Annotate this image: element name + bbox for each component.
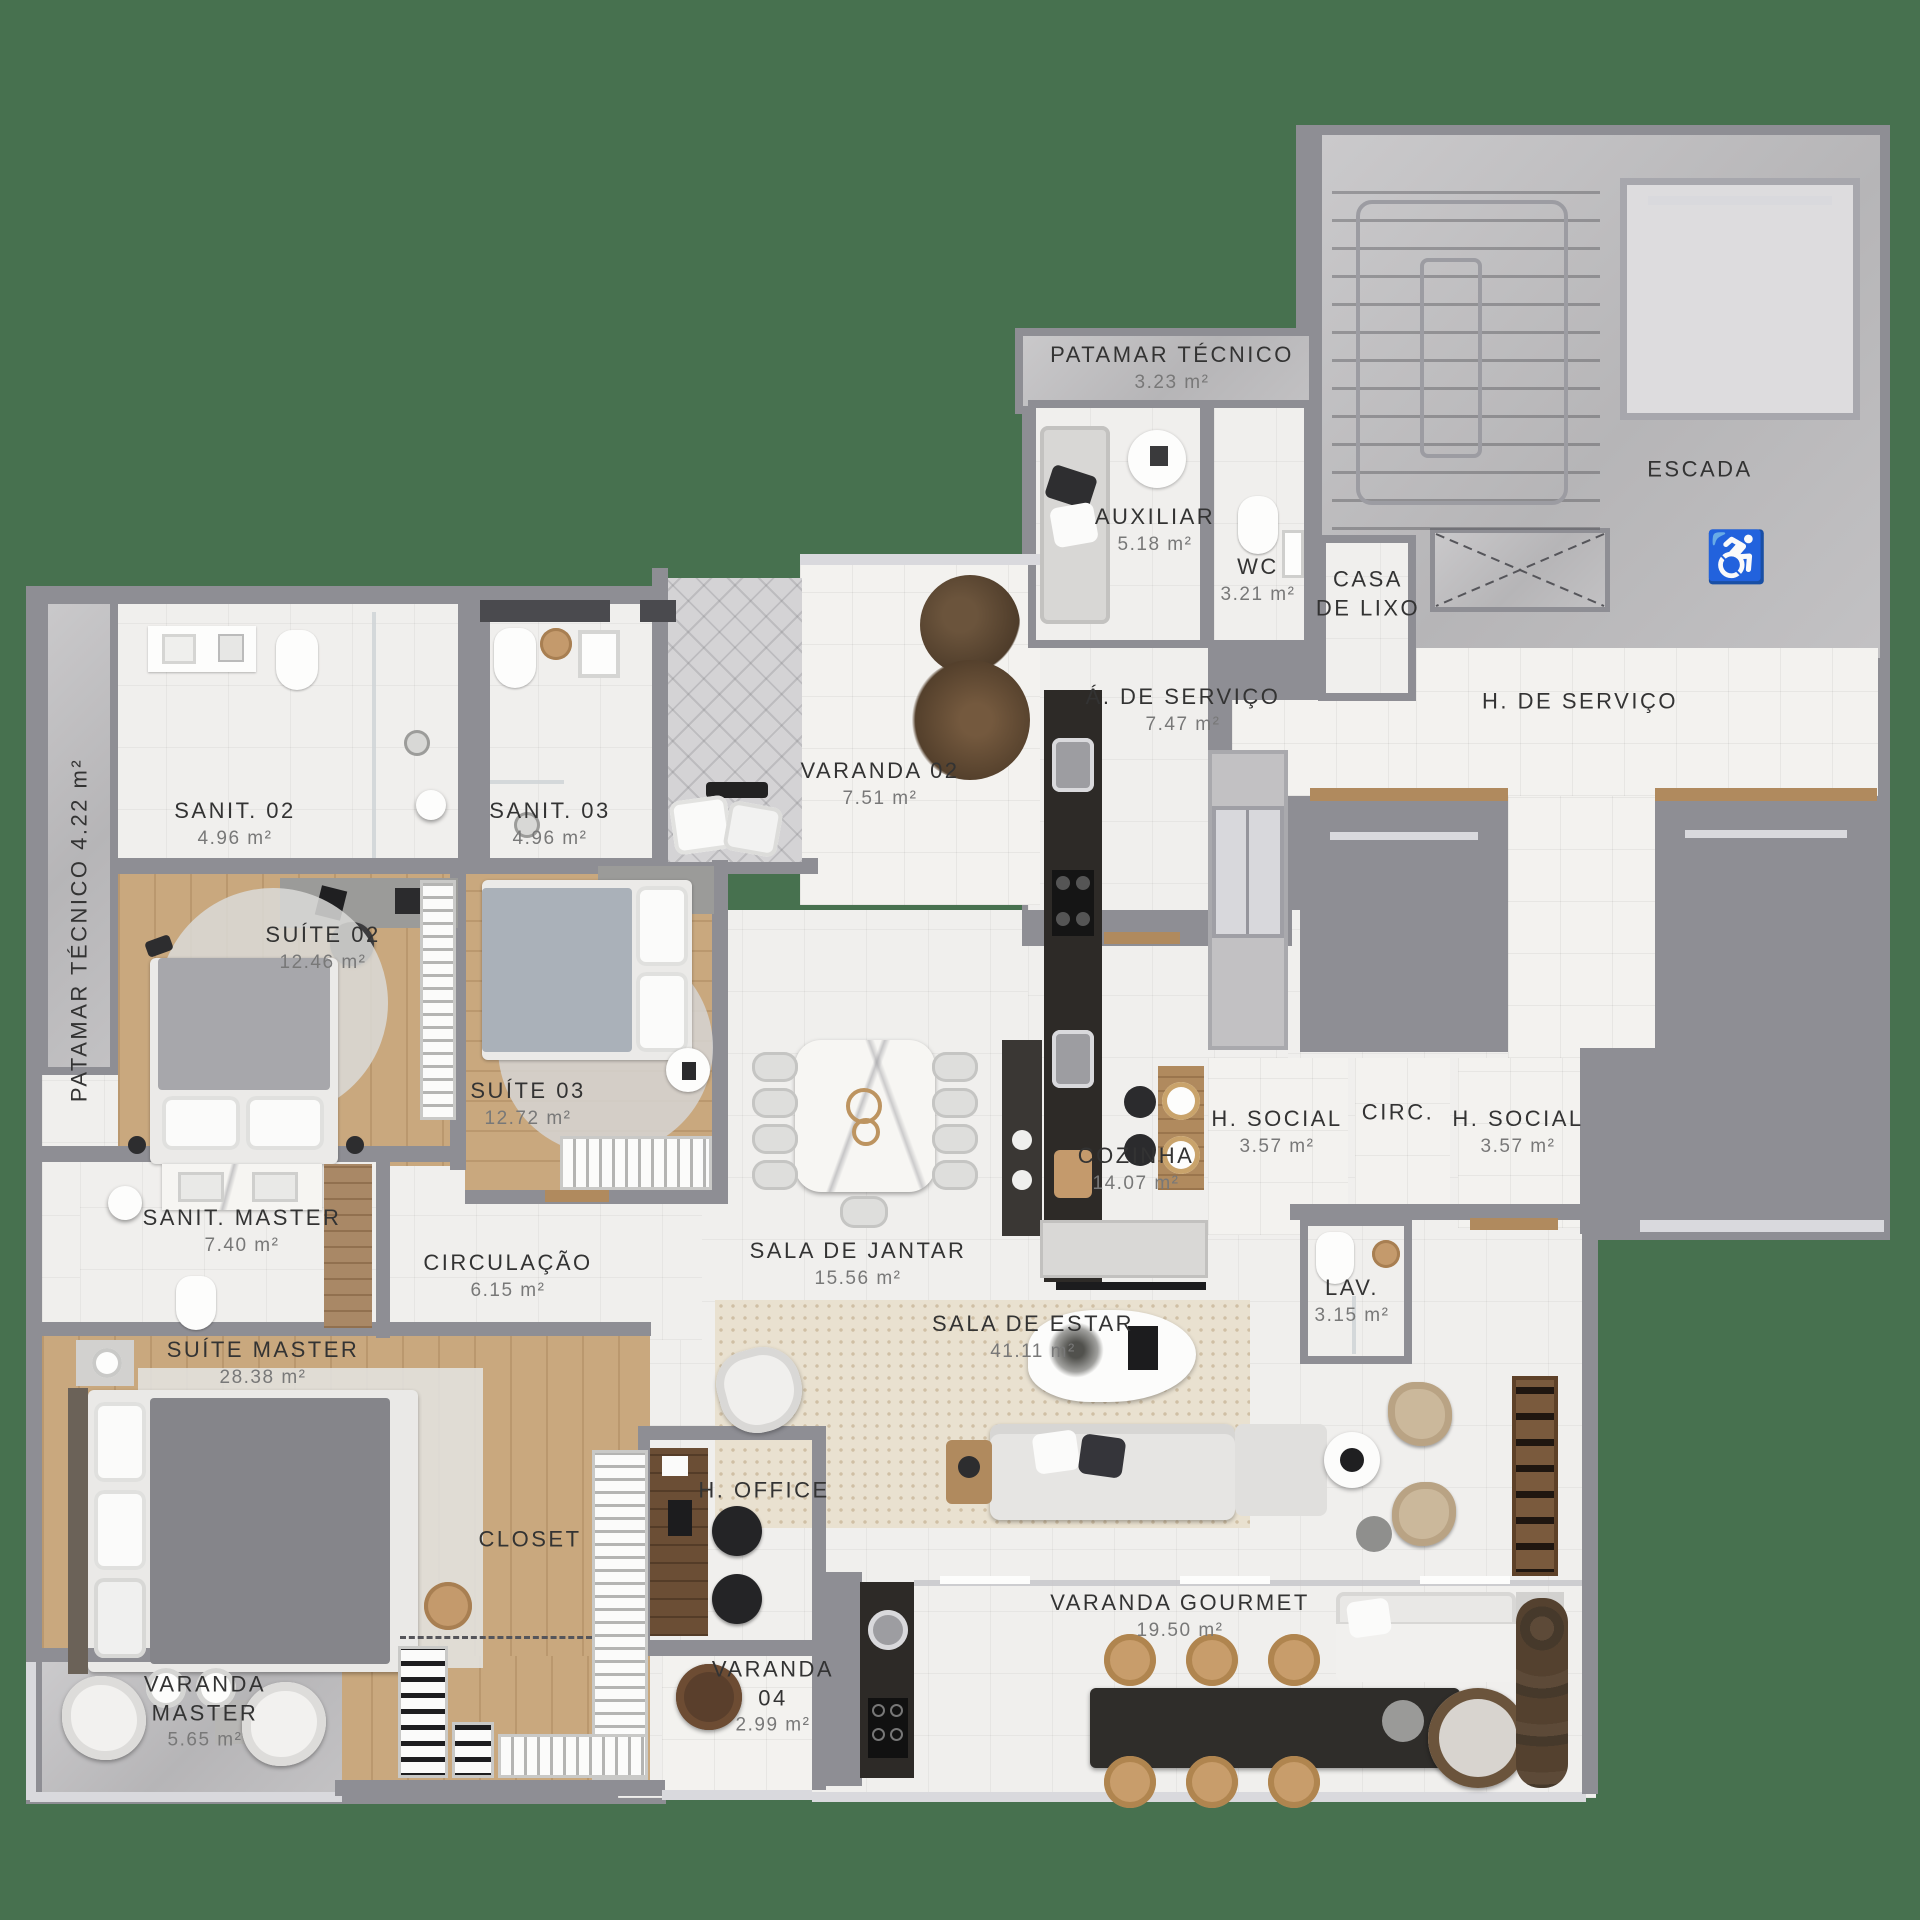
room-name: SUÍTE MASTER	[167, 1337, 360, 1362]
room-label-lav: LAV.3.15 m²	[1315, 1274, 1390, 1328]
room-label-patamar-tecnico-left: PATAMAR TÉCNICO 4.22 m²	[66, 758, 95, 1102]
room-name: SANIT. MASTER	[143, 1205, 342, 1230]
room-name: PATAMAR TÉCNICO	[1050, 342, 1294, 367]
room-area: 41.11 m²	[932, 1339, 1134, 1364]
room-label-patamar-tecnico-top: PATAMAR TÉCNICO3.23 m²	[1050, 341, 1294, 395]
room-label-sala-de-jantar: SALA DE JANTAR15.56 m²	[750, 1237, 967, 1291]
room-name: SALA DE ESTAR	[932, 1311, 1134, 1336]
room-label-auxiliar: AUXILIAR5.18 m²	[1095, 503, 1215, 557]
room-label-h-office: H. OFFICE	[698, 1477, 829, 1506]
room-label-h-social-left: H. SOCIAL3.57 m²	[1211, 1105, 1342, 1159]
room-area: 3.21 m²	[1221, 582, 1296, 607]
room-area: 12.72 m²	[470, 1106, 585, 1131]
room-area: 6.15 m²	[423, 1278, 592, 1303]
room-area: 15.56 m²	[750, 1266, 967, 1291]
room-name: Á. DE SERVIÇO	[1086, 684, 1281, 709]
room-label-suite-master: SUÍTE MASTER28.38 m²	[167, 1336, 360, 1390]
room-name: COZINHA	[1078, 1143, 1195, 1168]
room-label-varanda-master: VARANDA MASTER5.65 m²	[144, 1671, 266, 1754]
room-name: H. DE SERVIÇO	[1482, 689, 1678, 714]
room-area: 3.57 m²	[1452, 1134, 1583, 1159]
room-label-h-de-servico: H. DE SERVIÇO	[1482, 688, 1678, 717]
room-label-sala-de-estar: SALA DE ESTAR41.11 m²	[932, 1310, 1134, 1364]
room-label-varanda-02: VARANDA 027.51 m²	[800, 757, 959, 811]
room-area: 3.57 m²	[1211, 1134, 1342, 1159]
room-name: H. SOCIAL	[1211, 1106, 1342, 1131]
room-name: VARANDA 04	[712, 1657, 834, 1711]
room-area: 14.07 m²	[1078, 1171, 1195, 1196]
room-area: 3.23 m²	[1050, 370, 1294, 395]
room-name: LAV.	[1325, 1275, 1379, 1300]
room-area: 7.51 m²	[800, 786, 959, 811]
room-name: VARANDA GOURMET	[1050, 1590, 1310, 1615]
room-name: SUÍTE 03	[470, 1078, 585, 1103]
room-label-varanda-gourmet: VARANDA GOURMET19.50 m²	[1050, 1589, 1310, 1643]
room-label-sanit-03: SANIT. 034.96 m²	[489, 797, 611, 851]
room-area: 28.38 m²	[167, 1365, 360, 1390]
room-area: 7.47 m²	[1086, 712, 1281, 737]
room-name: PATAMAR TÉCNICO 4.22 m²	[67, 758, 92, 1102]
room-label-escada: ESCADA	[1647, 456, 1752, 485]
room-name: H. SOCIAL	[1452, 1106, 1583, 1131]
room-name: SANIT. 02	[174, 798, 296, 823]
room-label-varanda-04: VARANDA 042.99 m²	[712, 1656, 834, 1739]
room-name: VARANDA 02	[800, 758, 959, 783]
room-label-cozinha: COZINHA14.07 m²	[1078, 1142, 1195, 1196]
room-label-a-de-servico: Á. DE SERVIÇO7.47 m²	[1086, 683, 1281, 737]
room-name: H. OFFICE	[698, 1478, 829, 1503]
room-area: 3.15 m²	[1315, 1303, 1390, 1328]
room-label-casa-de-lixo: CASA DE LIXO	[1316, 565, 1420, 622]
room-area: 5.18 m²	[1095, 532, 1215, 557]
room-name: CLOSET	[478, 1527, 581, 1552]
room-area: 4.96 m²	[174, 826, 296, 851]
room-name: SALA DE JANTAR	[750, 1238, 967, 1263]
room-label-sanit-master: SANIT. MASTER7.40 m²	[143, 1204, 342, 1258]
room-name: CASA DE LIXO	[1316, 566, 1420, 620]
floor-plan: ♿	[0, 0, 1920, 1920]
room-area: 4.96 m²	[489, 826, 611, 851]
room-name: CIRCULAÇÃO	[423, 1250, 592, 1275]
room-area: 5.65 m²	[144, 1729, 266, 1754]
room-label-circulacao: CIRCULAÇÃO6.15 m²	[423, 1249, 592, 1303]
room-label-circ: CIRC.	[1362, 1099, 1434, 1128]
room-label-wc: WC3.21 m²	[1221, 553, 1296, 607]
room-area: 19.50 m²	[1050, 1618, 1310, 1643]
room-name: AUXILIAR	[1095, 504, 1215, 529]
room-label-suite-02: SUÍTE 0212.46 m²	[265, 921, 380, 975]
room-name: WC	[1237, 554, 1279, 579]
room-name: CIRC.	[1362, 1100, 1434, 1125]
room-labels-layer: PATAMAR TÉCNICO3.23 m²ESCADAAUXILIAR5.18…	[0, 0, 1920, 1920]
room-label-closet: CLOSET	[478, 1526, 581, 1555]
room-name: VARANDA MASTER	[144, 1672, 266, 1726]
room-label-h-social-right: H. SOCIAL3.57 m²	[1452, 1105, 1583, 1159]
room-area: 12.46 m²	[265, 950, 380, 975]
room-name: SANIT. 03	[489, 798, 611, 823]
room-area: 2.99 m²	[712, 1714, 834, 1739]
room-area: 7.40 m²	[143, 1233, 342, 1258]
room-name: SUÍTE 02	[265, 922, 380, 947]
room-label-sanit-02: SANIT. 024.96 m²	[174, 797, 296, 851]
room-label-suite-03: SUÍTE 0312.72 m²	[470, 1077, 585, 1131]
room-name: ESCADA	[1647, 457, 1752, 482]
